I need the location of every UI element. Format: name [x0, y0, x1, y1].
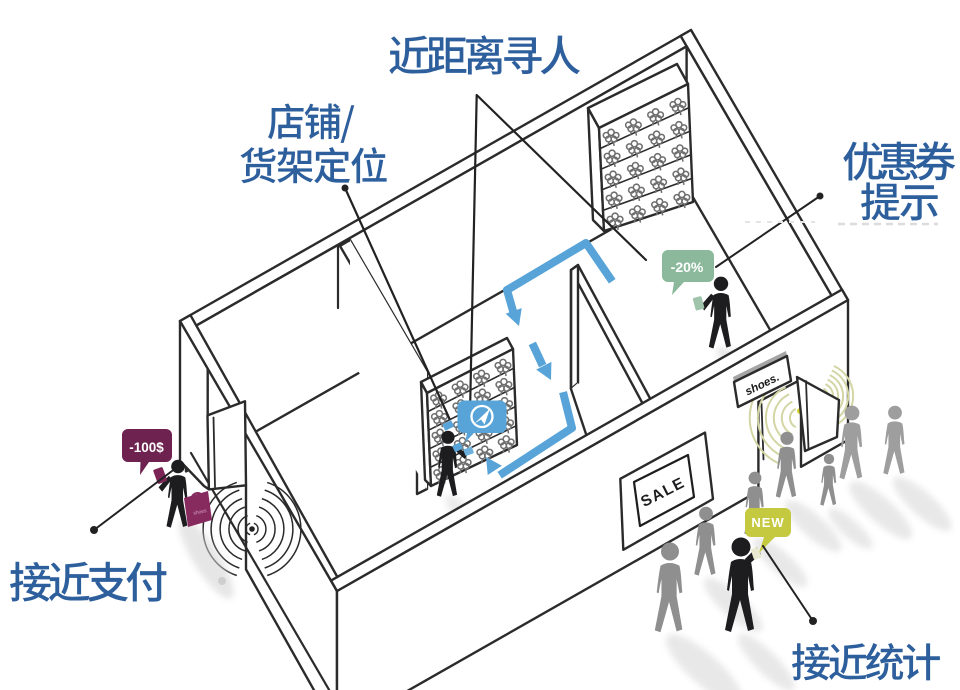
svg-text:-100$: -100$	[129, 440, 164, 455]
svg-text:NEW: NEW	[751, 515, 784, 530]
svg-text:-20%: -20%	[671, 259, 704, 275]
